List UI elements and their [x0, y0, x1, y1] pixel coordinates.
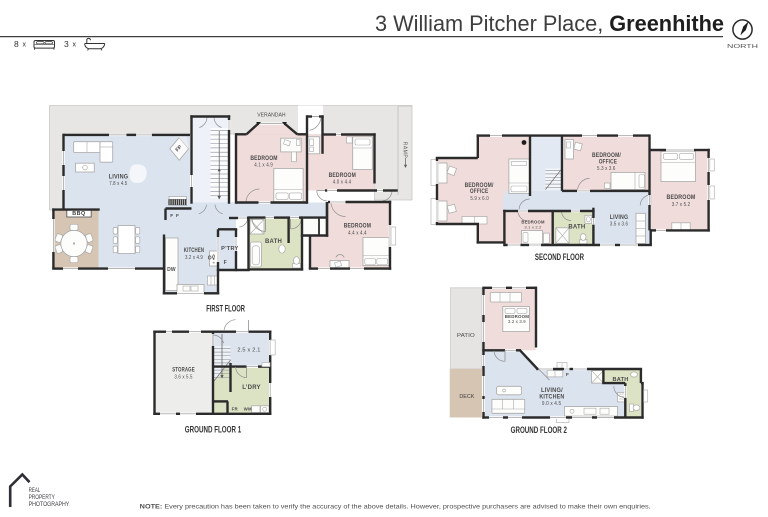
svg-text:3.6 x 5.5: 3.6 x 5.5	[174, 375, 192, 381]
svg-text:3: 3	[64, 39, 69, 49]
svg-text:REAL: REAL	[29, 487, 41, 494]
svg-text:x: x	[23, 42, 27, 49]
svg-text:KITCHEN: KITCHEN	[539, 393, 564, 400]
svg-text:L’DRY: L’DRY	[242, 385, 260, 391]
svg-text:PROPERTY: PROPERTY	[29, 494, 56, 501]
svg-text:RAMP: RAMP	[402, 142, 408, 159]
svg-text:OFFICE: OFFICE	[470, 188, 488, 195]
svg-text:GROUND FLOOR 2: GROUND FLOOR 2	[511, 425, 567, 435]
svg-text:7.8 x 4.5: 7.8 x 4.5	[109, 181, 127, 187]
svg-text:BATH: BATH	[613, 377, 629, 383]
svg-text:BEDROOM: BEDROOM	[250, 155, 277, 162]
svg-text:OV: OV	[208, 256, 216, 262]
svg-text:3.2 x 3.9: 3.2 x 3.9	[508, 319, 526, 324]
svg-text:3.7 x 5.2: 3.7 x 5.2	[672, 202, 691, 208]
svg-text:5.9 x 6.0: 5.9 x 6.0	[470, 196, 489, 202]
svg-text:F: F	[176, 213, 179, 219]
svg-text:F: F	[170, 213, 173, 219]
svg-text:SECOND FLOOR: SECOND FLOOR	[535, 252, 585, 262]
svg-text:3.1 x 2.2: 3.1 x 2.2	[524, 224, 542, 229]
svg-text:BATH: BATH	[568, 224, 585, 230]
svg-text:LIVING: LIVING	[109, 173, 129, 180]
svg-text:5.3 x 3.6: 5.3 x 3.6	[597, 166, 616, 172]
svg-text:GROUND FLOOR 1: GROUND FLOOR 1	[185, 425, 241, 435]
svg-text:P’TRY: P’TRY	[221, 246, 238, 252]
svg-text:BEDROOM: BEDROOM	[667, 194, 696, 201]
svg-text:STORAGE: STORAGE	[172, 367, 195, 374]
svg-text:BATH: BATH	[265, 239, 282, 245]
svg-text:OFFICE: OFFICE	[599, 159, 617, 166]
svg-text:NOTE: Every precaution has bee: NOTE: Every precaution has been taken to…	[140, 504, 651, 511]
svg-text:PHOTOGRAPHY: PHOTOGRAPHY	[29, 501, 70, 508]
svg-text:BEDROOM: BEDROOM	[329, 172, 356, 179]
svg-text:F: F	[566, 372, 569, 377]
svg-text:KITCHEN: KITCHEN	[184, 248, 204, 254]
svg-text:2.5 x 2.1: 2.5 x 2.1	[237, 347, 260, 353]
svg-text:4.0 x 4.4: 4.0 x 4.4	[333, 180, 352, 186]
svg-text:NORTH: NORTH	[727, 44, 758, 50]
svg-text:4.4 x 4.4: 4.4 x 4.4	[348, 231, 367, 237]
svg-text:F: F	[224, 260, 227, 266]
svg-text:3 William Pitcher Place, Green: 3 William Pitcher Place, Greenhithe	[375, 11, 724, 36]
svg-text:VERANDAH: VERANDAH	[257, 113, 285, 119]
svg-text:BEDROOM: BEDROOM	[344, 223, 371, 230]
svg-text:9.0 x 4.5: 9.0 x 4.5	[542, 401, 561, 407]
svg-text:DW: DW	[167, 267, 176, 273]
svg-text:FIRST FLOOR: FIRST FLOOR	[206, 304, 245, 314]
svg-text:8: 8	[14, 39, 19, 49]
svg-text:3.5 x 3.6: 3.5 x 3.6	[610, 222, 628, 228]
svg-text:LIVING: LIVING	[610, 214, 629, 221]
svg-text:DECK: DECK	[459, 394, 474, 400]
svg-text:3.2 x 4.9: 3.2 x 4.9	[185, 255, 203, 261]
svg-text:BBQ: BBQ	[72, 211, 85, 217]
svg-text:FR: FR	[232, 407, 239, 412]
svg-text:PATIO: PATIO	[457, 333, 475, 339]
svg-text:4.1 x 4.9: 4.1 x 4.9	[254, 163, 273, 169]
svg-text:x: x	[73, 42, 77, 49]
svg-text:WM: WM	[244, 407, 252, 412]
